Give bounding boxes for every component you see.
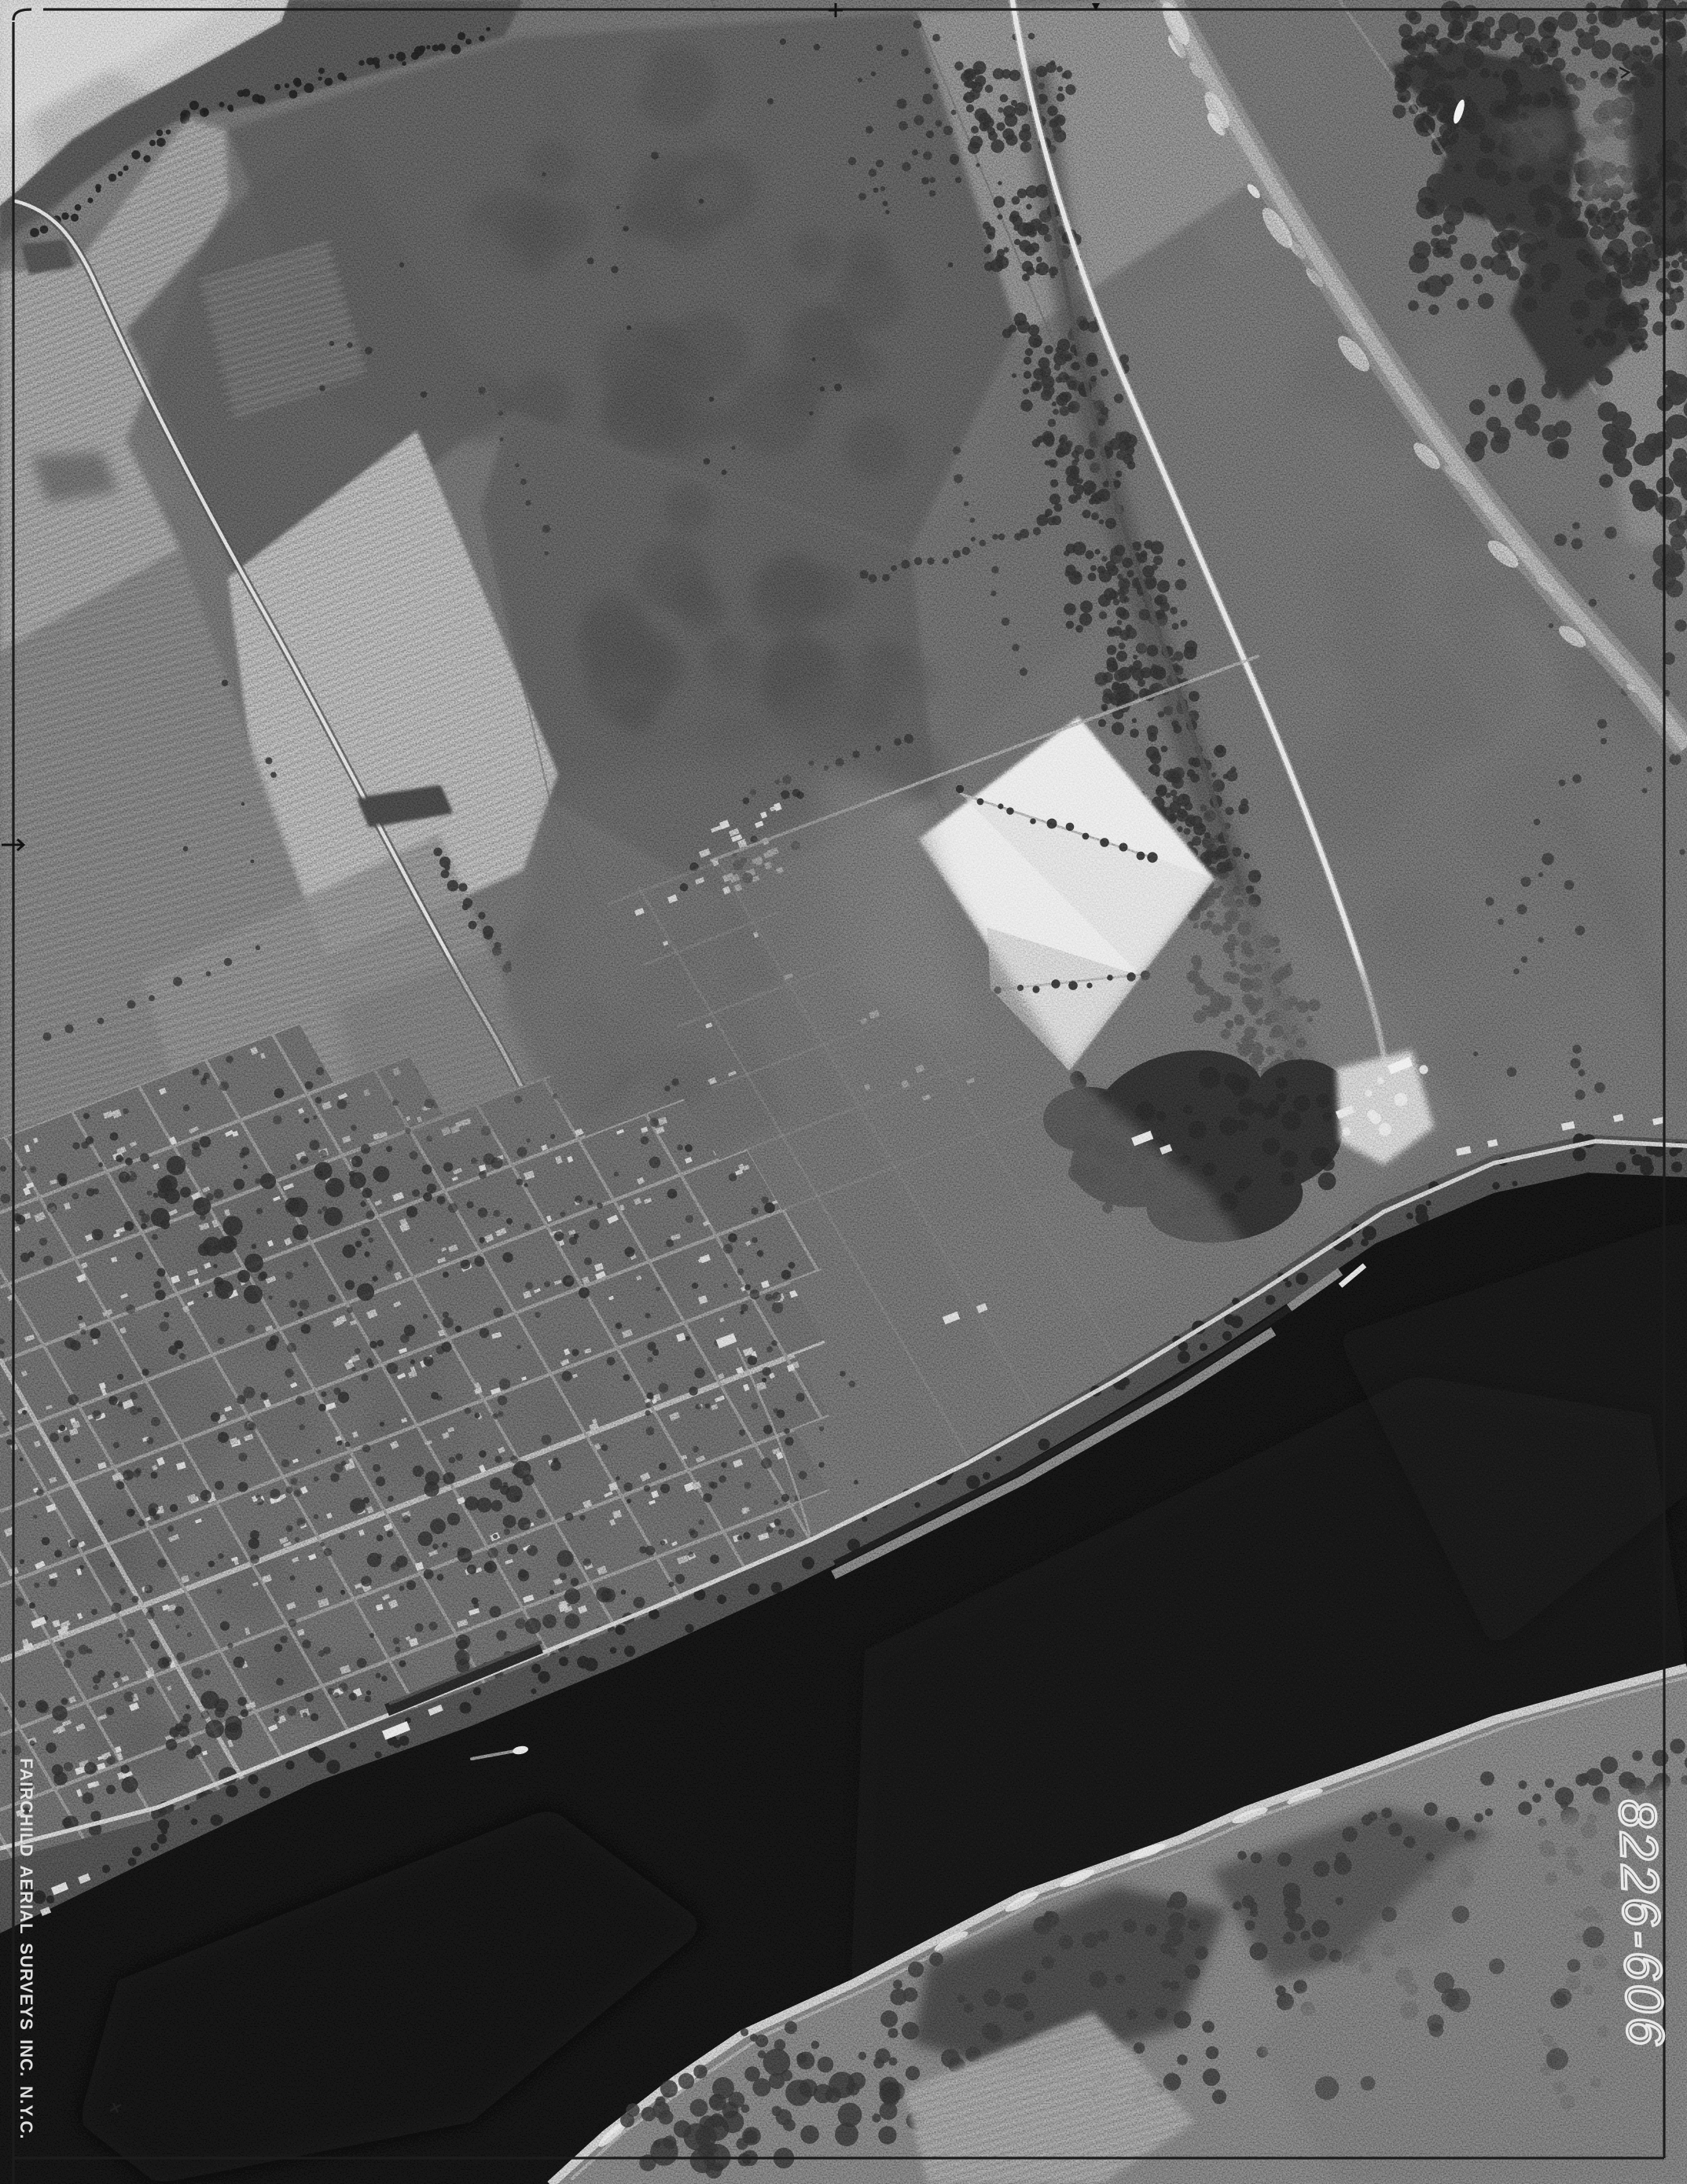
- svg-text:8226-606: 8226-606: [1608, 1798, 1675, 2050]
- svg-text:FAIRCHILD AERIAL SURVEYS INC.: FAIRCHILD AERIAL SURVEYS INC. N.Y.C.: [17, 1758, 36, 2140]
